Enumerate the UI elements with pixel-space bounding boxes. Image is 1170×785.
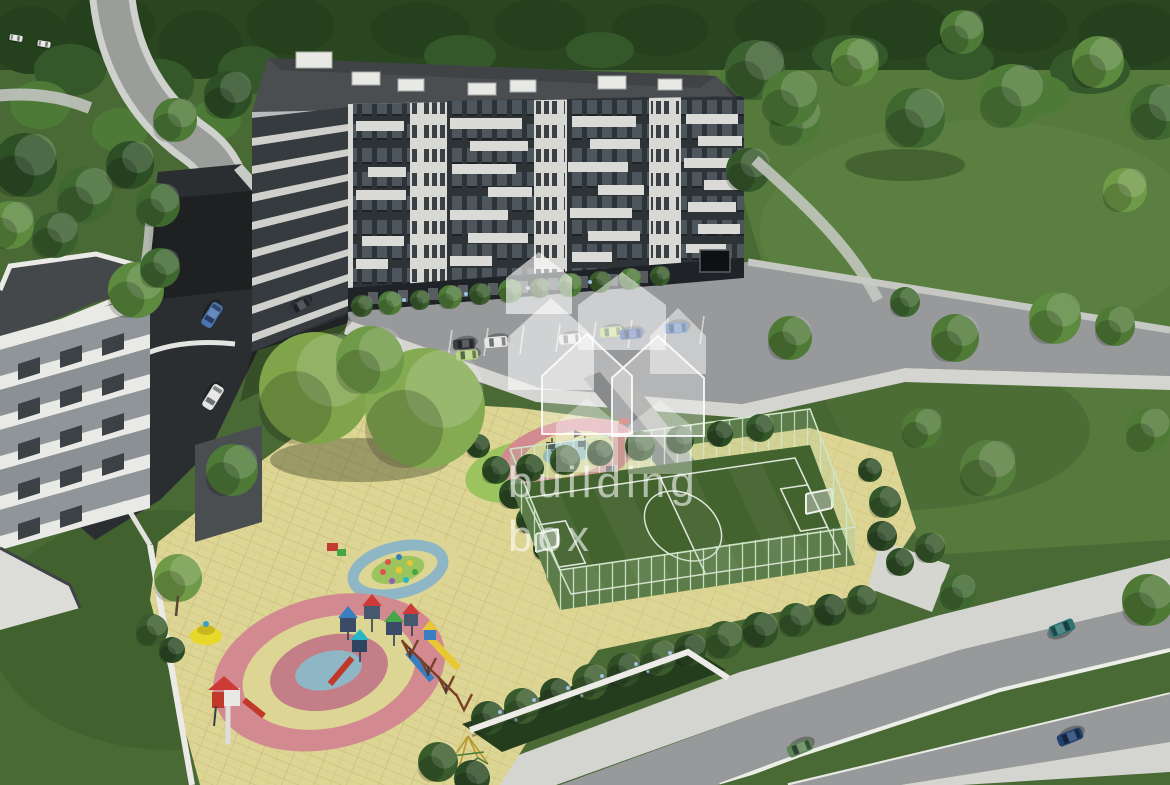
watermark-line2: box (508, 512, 594, 561)
watermark-line1: building (508, 458, 700, 507)
render-viewport: building box (0, 0, 1170, 785)
terraced-floors (0, 294, 150, 550)
garage-door (700, 250, 730, 272)
render-canvas: building box (0, 0, 1170, 785)
